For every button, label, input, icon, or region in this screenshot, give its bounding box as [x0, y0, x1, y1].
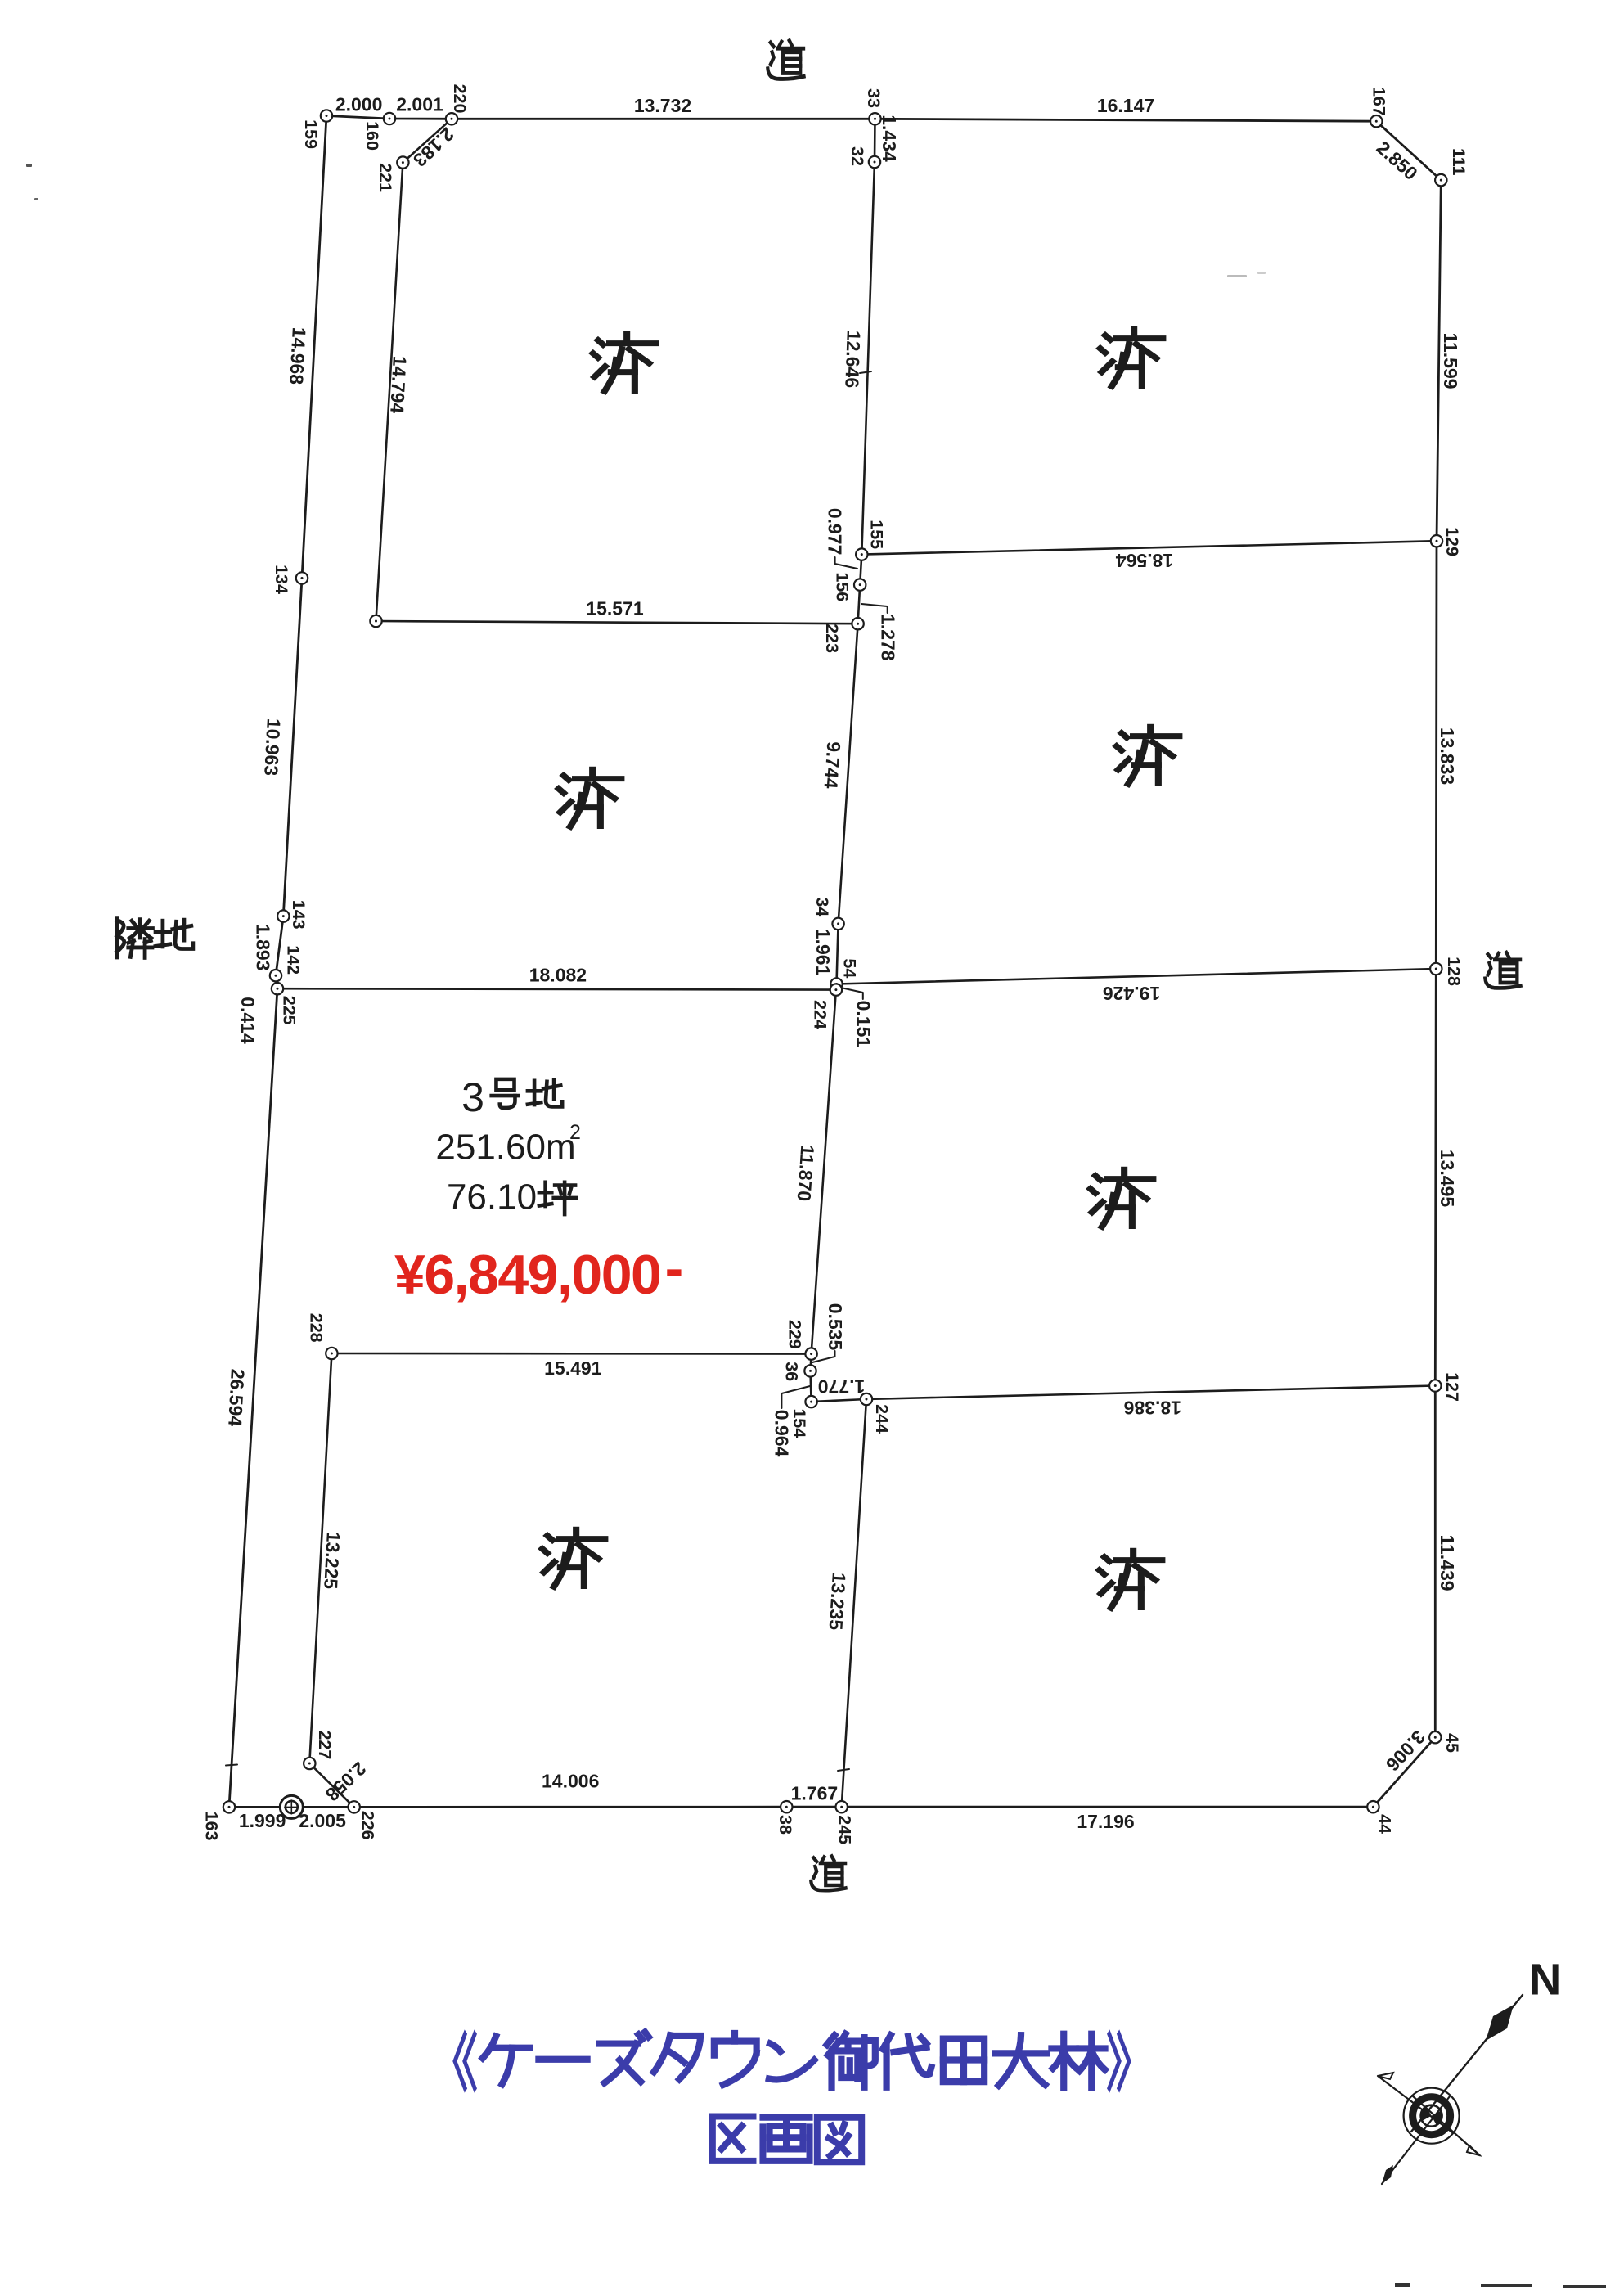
svg-text:1.770: 1.770 [818, 1376, 866, 1398]
svg-text:0.964: 0.964 [771, 1410, 792, 1457]
svg-text:1.999: 1.999 [239, 1810, 286, 1831]
svg-text:1.278: 1.278 [877, 614, 898, 661]
svg-text:127: 127 [1442, 1372, 1462, 1402]
svg-text:12.646: 12.646 [841, 330, 864, 388]
svg-text:54: 54 [840, 958, 860, 978]
svg-text:2.001: 2.001 [396, 94, 443, 115]
svg-text:45: 45 [1442, 1733, 1462, 1753]
svg-text:18.386: 18.386 [1124, 1397, 1181, 1418]
svg-text:1.893: 1.893 [253, 924, 274, 971]
svg-text:229: 229 [785, 1320, 805, 1349]
svg-text:1.961: 1.961 [812, 929, 834, 976]
svg-text:0.535: 0.535 [825, 1303, 846, 1351]
svg-text:14.794: 14.794 [386, 355, 411, 414]
svg-text:33: 33 [864, 88, 884, 108]
svg-text:36: 36 [782, 1362, 802, 1381]
svg-text:142: 142 [284, 945, 304, 975]
svg-text:15.491: 15.491 [544, 1357, 602, 1379]
svg-text:76.10: 76.10 [447, 1177, 537, 1218]
svg-text:0.151: 0.151 [853, 1001, 875, 1048]
svg-text:13.235: 13.235 [825, 1572, 850, 1631]
svg-text:223: 223 [822, 624, 842, 653]
svg-text:224: 224 [810, 1000, 830, 1029]
svg-text:17.196: 17.196 [1077, 1811, 1134, 1832]
svg-text:156: 156 [832, 572, 852, 601]
svg-text:1.767: 1.767 [791, 1783, 839, 1804]
svg-text:160: 160 [362, 121, 382, 151]
svg-text:167: 167 [1369, 87, 1388, 116]
svg-text:227: 227 [315, 1730, 335, 1759]
svg-text:14.968: 14.968 [286, 326, 310, 385]
svg-text:163: 163 [202, 1812, 222, 1841]
svg-text:¥6,849,000: ¥6,849,000 [394, 1244, 660, 1306]
svg-text:13.732: 13.732 [634, 95, 691, 116]
svg-text:3: 3 [461, 1074, 484, 1120]
svg-text:-: - [665, 1237, 684, 1299]
svg-text:0.977: 0.977 [825, 508, 846, 556]
svg-text:15.571: 15.571 [586, 598, 644, 619]
svg-text:18.564: 18.564 [1116, 550, 1174, 571]
svg-text:221: 221 [376, 163, 395, 192]
svg-text:134: 134 [272, 565, 291, 594]
svg-text:159: 159 [301, 119, 321, 149]
svg-text:19.426: 19.426 [1103, 983, 1160, 1004]
svg-text:245: 245 [835, 1815, 855, 1844]
svg-text:225: 225 [280, 996, 299, 1025]
svg-text:38: 38 [776, 1815, 795, 1835]
svg-text:14.006: 14.006 [542, 1771, 599, 1792]
svg-text:244: 244 [872, 1404, 892, 1434]
svg-text:0.414: 0.414 [237, 997, 259, 1044]
svg-text:11.870: 11.870 [794, 1144, 819, 1202]
svg-text:11.439: 11.439 [1437, 1534, 1458, 1591]
svg-text:111: 111 [1449, 148, 1469, 176]
svg-text:2: 2 [569, 1121, 581, 1144]
svg-text:155: 155 [867, 520, 887, 549]
svg-text:34: 34 [812, 897, 832, 916]
svg-text:228: 228 [306, 1313, 326, 1343]
svg-text:1.434: 1.434 [879, 115, 900, 162]
svg-text:226: 226 [358, 1811, 378, 1840]
svg-text:10.963: 10.963 [260, 718, 285, 777]
svg-text:44: 44 [1375, 1814, 1395, 1834]
svg-text:32: 32 [848, 146, 867, 166]
svg-text:143: 143 [289, 900, 308, 930]
svg-text:129: 129 [1442, 527, 1462, 556]
svg-text:251.60m: 251.60m [435, 1128, 575, 1168]
svg-text:220: 220 [450, 84, 470, 114]
svg-text:13.495: 13.495 [1437, 1150, 1458, 1208]
svg-text:26.594: 26.594 [224, 1368, 249, 1427]
svg-text:2.005: 2.005 [299, 1810, 346, 1831]
svg-text:11.599: 11.599 [1440, 332, 1461, 389]
svg-text:128: 128 [1444, 957, 1464, 986]
svg-text:9.744: 9.744 [821, 741, 845, 789]
svg-text:2.000: 2.000 [335, 94, 383, 115]
svg-text:18.082: 18.082 [529, 965, 587, 986]
svg-text:16.147: 16.147 [1097, 95, 1154, 116]
svg-text:13.833: 13.833 [1437, 727, 1458, 785]
svg-text:N: N [1529, 1956, 1561, 2005]
svg-text:13.225: 13.225 [320, 1531, 344, 1590]
